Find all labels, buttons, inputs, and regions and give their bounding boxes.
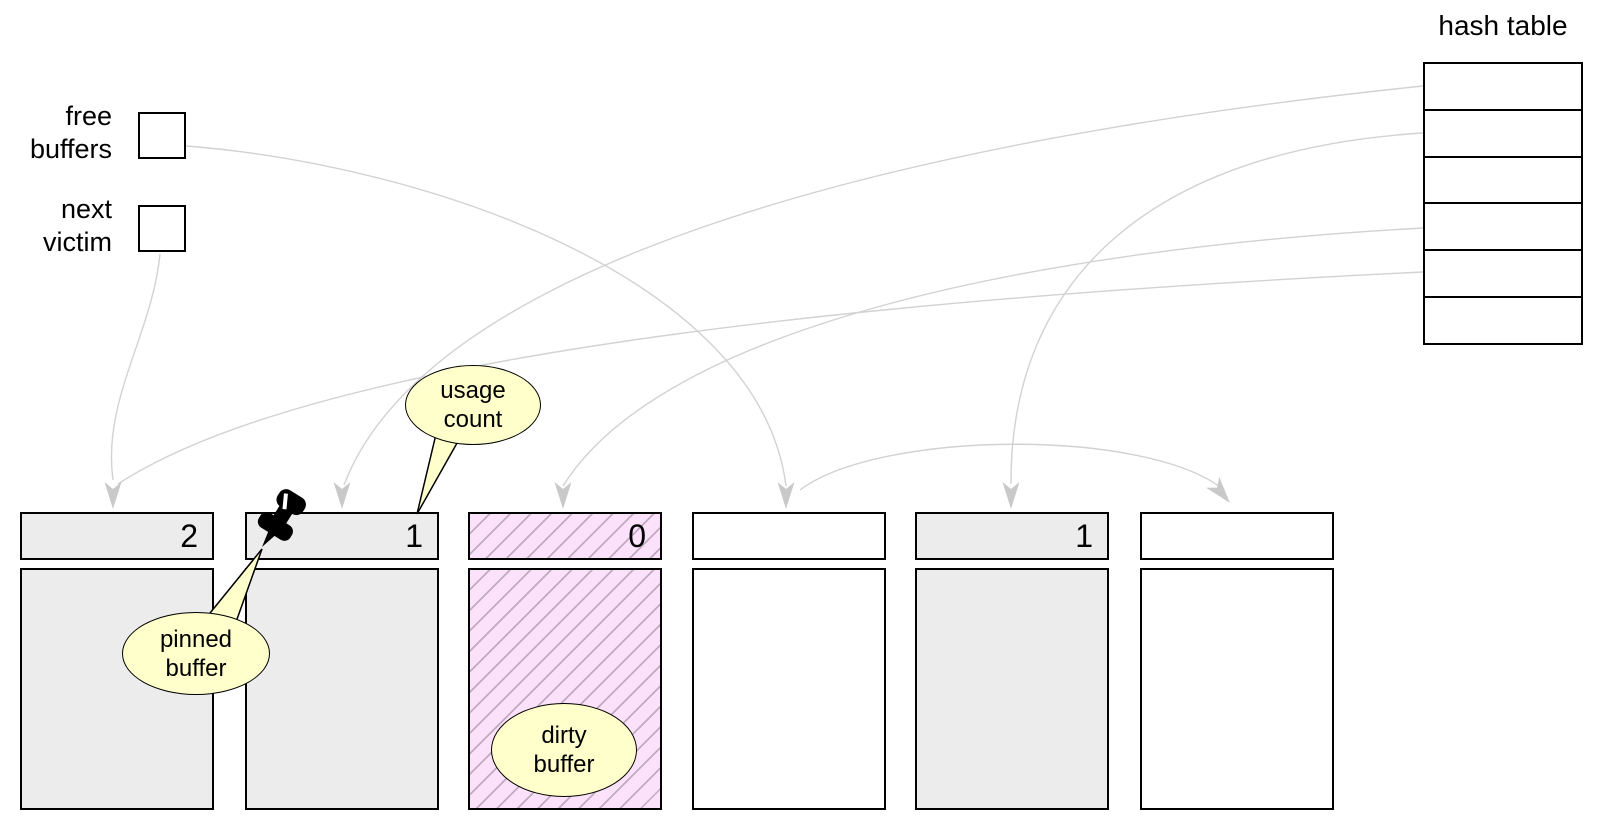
- usage-count-value: 2: [180, 518, 198, 555]
- hash-table-row: [1425, 64, 1581, 109]
- hash-table-row: [1425, 296, 1581, 343]
- usage-count-value: 1: [1075, 518, 1093, 555]
- buffer-2-pinned: 1: [245, 512, 439, 810]
- buffer-6-free: [1140, 512, 1334, 810]
- next-victim-label: next victim: [2, 193, 112, 259]
- buffer-2-usage-count-cell: 1: [245, 512, 439, 560]
- usage-count-callout: usage count: [405, 365, 541, 445]
- buffer-3-usage-count-cell: 0: [468, 512, 662, 560]
- hash-row4-arrow: [563, 228, 1423, 486]
- dirty-buffer-callout-text: dirty buffer: [517, 721, 612, 779]
- arrowhead-buffer-5: [1003, 482, 1020, 509]
- usage-count-callout-text: usage count: [426, 376, 521, 434]
- dirty-buffer-callout: dirty buffer: [491, 703, 637, 797]
- free-buffers-label: free buffers: [2, 100, 112, 166]
- buffer-5: 1: [915, 512, 1109, 810]
- free-buffers-pointer-box: [138, 112, 186, 159]
- hash-table-row: [1425, 249, 1581, 296]
- hash-table-row: [1425, 109, 1581, 156]
- hash-row2-arrow: [1011, 133, 1423, 484]
- arrowhead-buffer-2: [334, 482, 351, 509]
- buffer-4-free: [692, 512, 886, 810]
- free-chain-arrow: [800, 444, 1224, 490]
- pinned-buffer-callout: pinned buffer: [122, 612, 270, 695]
- hash-table: [1423, 62, 1583, 345]
- arrowhead-buffer-4: [778, 482, 795, 509]
- buffer-5-usage-count-cell: 1: [915, 512, 1109, 560]
- buffer-1-usage-count-cell: 2: [20, 512, 214, 560]
- arrowhead-buffer-3: [555, 482, 572, 509]
- buffer-6-page: [1140, 568, 1334, 810]
- next-victim-arrow: [111, 254, 160, 480]
- usage-count-value: 1: [405, 518, 423, 555]
- buffer-4-usage-count-cell: [692, 512, 886, 560]
- buffer-6-usage-count-cell: [1140, 512, 1334, 560]
- usage-count-value: 0: [628, 518, 646, 555]
- arrowhead-buffer-6: [1206, 477, 1236, 509]
- hash-row5-arrow: [118, 272, 1423, 484]
- buffer-4-page: [692, 568, 886, 810]
- pinned-buffer-callout-text: pinned buffer: [149, 625, 244, 683]
- arrowhead-buffer-1: [105, 482, 122, 509]
- hash-table-title: hash table: [1403, 10, 1600, 42]
- next-victim-pointer-box: [138, 205, 186, 252]
- hash-table-row: [1425, 202, 1581, 249]
- hash-table-row: [1425, 156, 1581, 203]
- buffer-2-page: [245, 568, 439, 810]
- buffer-5-page: [915, 568, 1109, 810]
